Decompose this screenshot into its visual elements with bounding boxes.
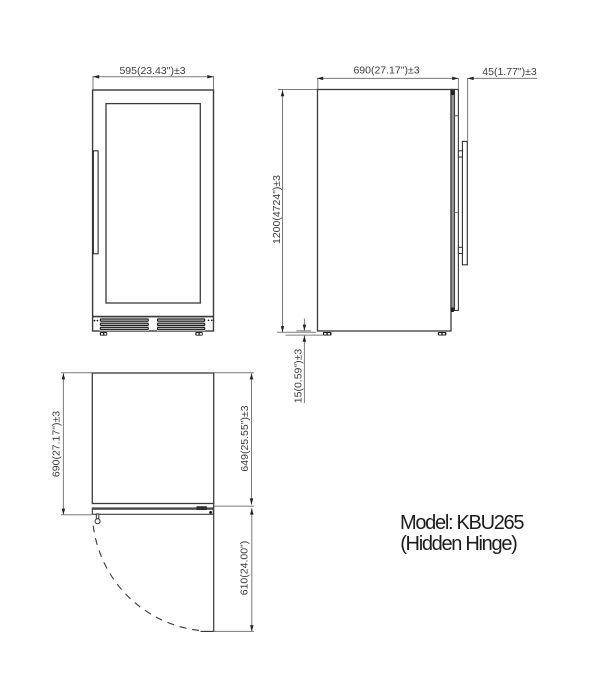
svg-text:(Hidden Hinge): (Hidden Hinge) xyxy=(400,533,517,555)
svg-text:Model: KBU265: Model: KBU265 xyxy=(400,512,524,534)
svg-text:15(0.59")±3: 15(0.59")±3 xyxy=(292,349,304,404)
svg-text:45(1.77")±3: 45(1.77")±3 xyxy=(482,66,537,78)
svg-text:690(27.17")±3: 690(27.17")±3 xyxy=(353,64,419,76)
svg-text:610(24.00"): 610(24.00") xyxy=(238,541,250,596)
svg-text:649(25.55")±3: 649(25.55")±3 xyxy=(239,405,251,471)
svg-text:1200(4724")±3: 1200(4724")±3 xyxy=(271,175,283,244)
svg-text:690(27.17")±3: 690(27.17")±3 xyxy=(51,411,63,477)
svg-text:595(23.43")±3: 595(23.43")±3 xyxy=(119,65,185,77)
